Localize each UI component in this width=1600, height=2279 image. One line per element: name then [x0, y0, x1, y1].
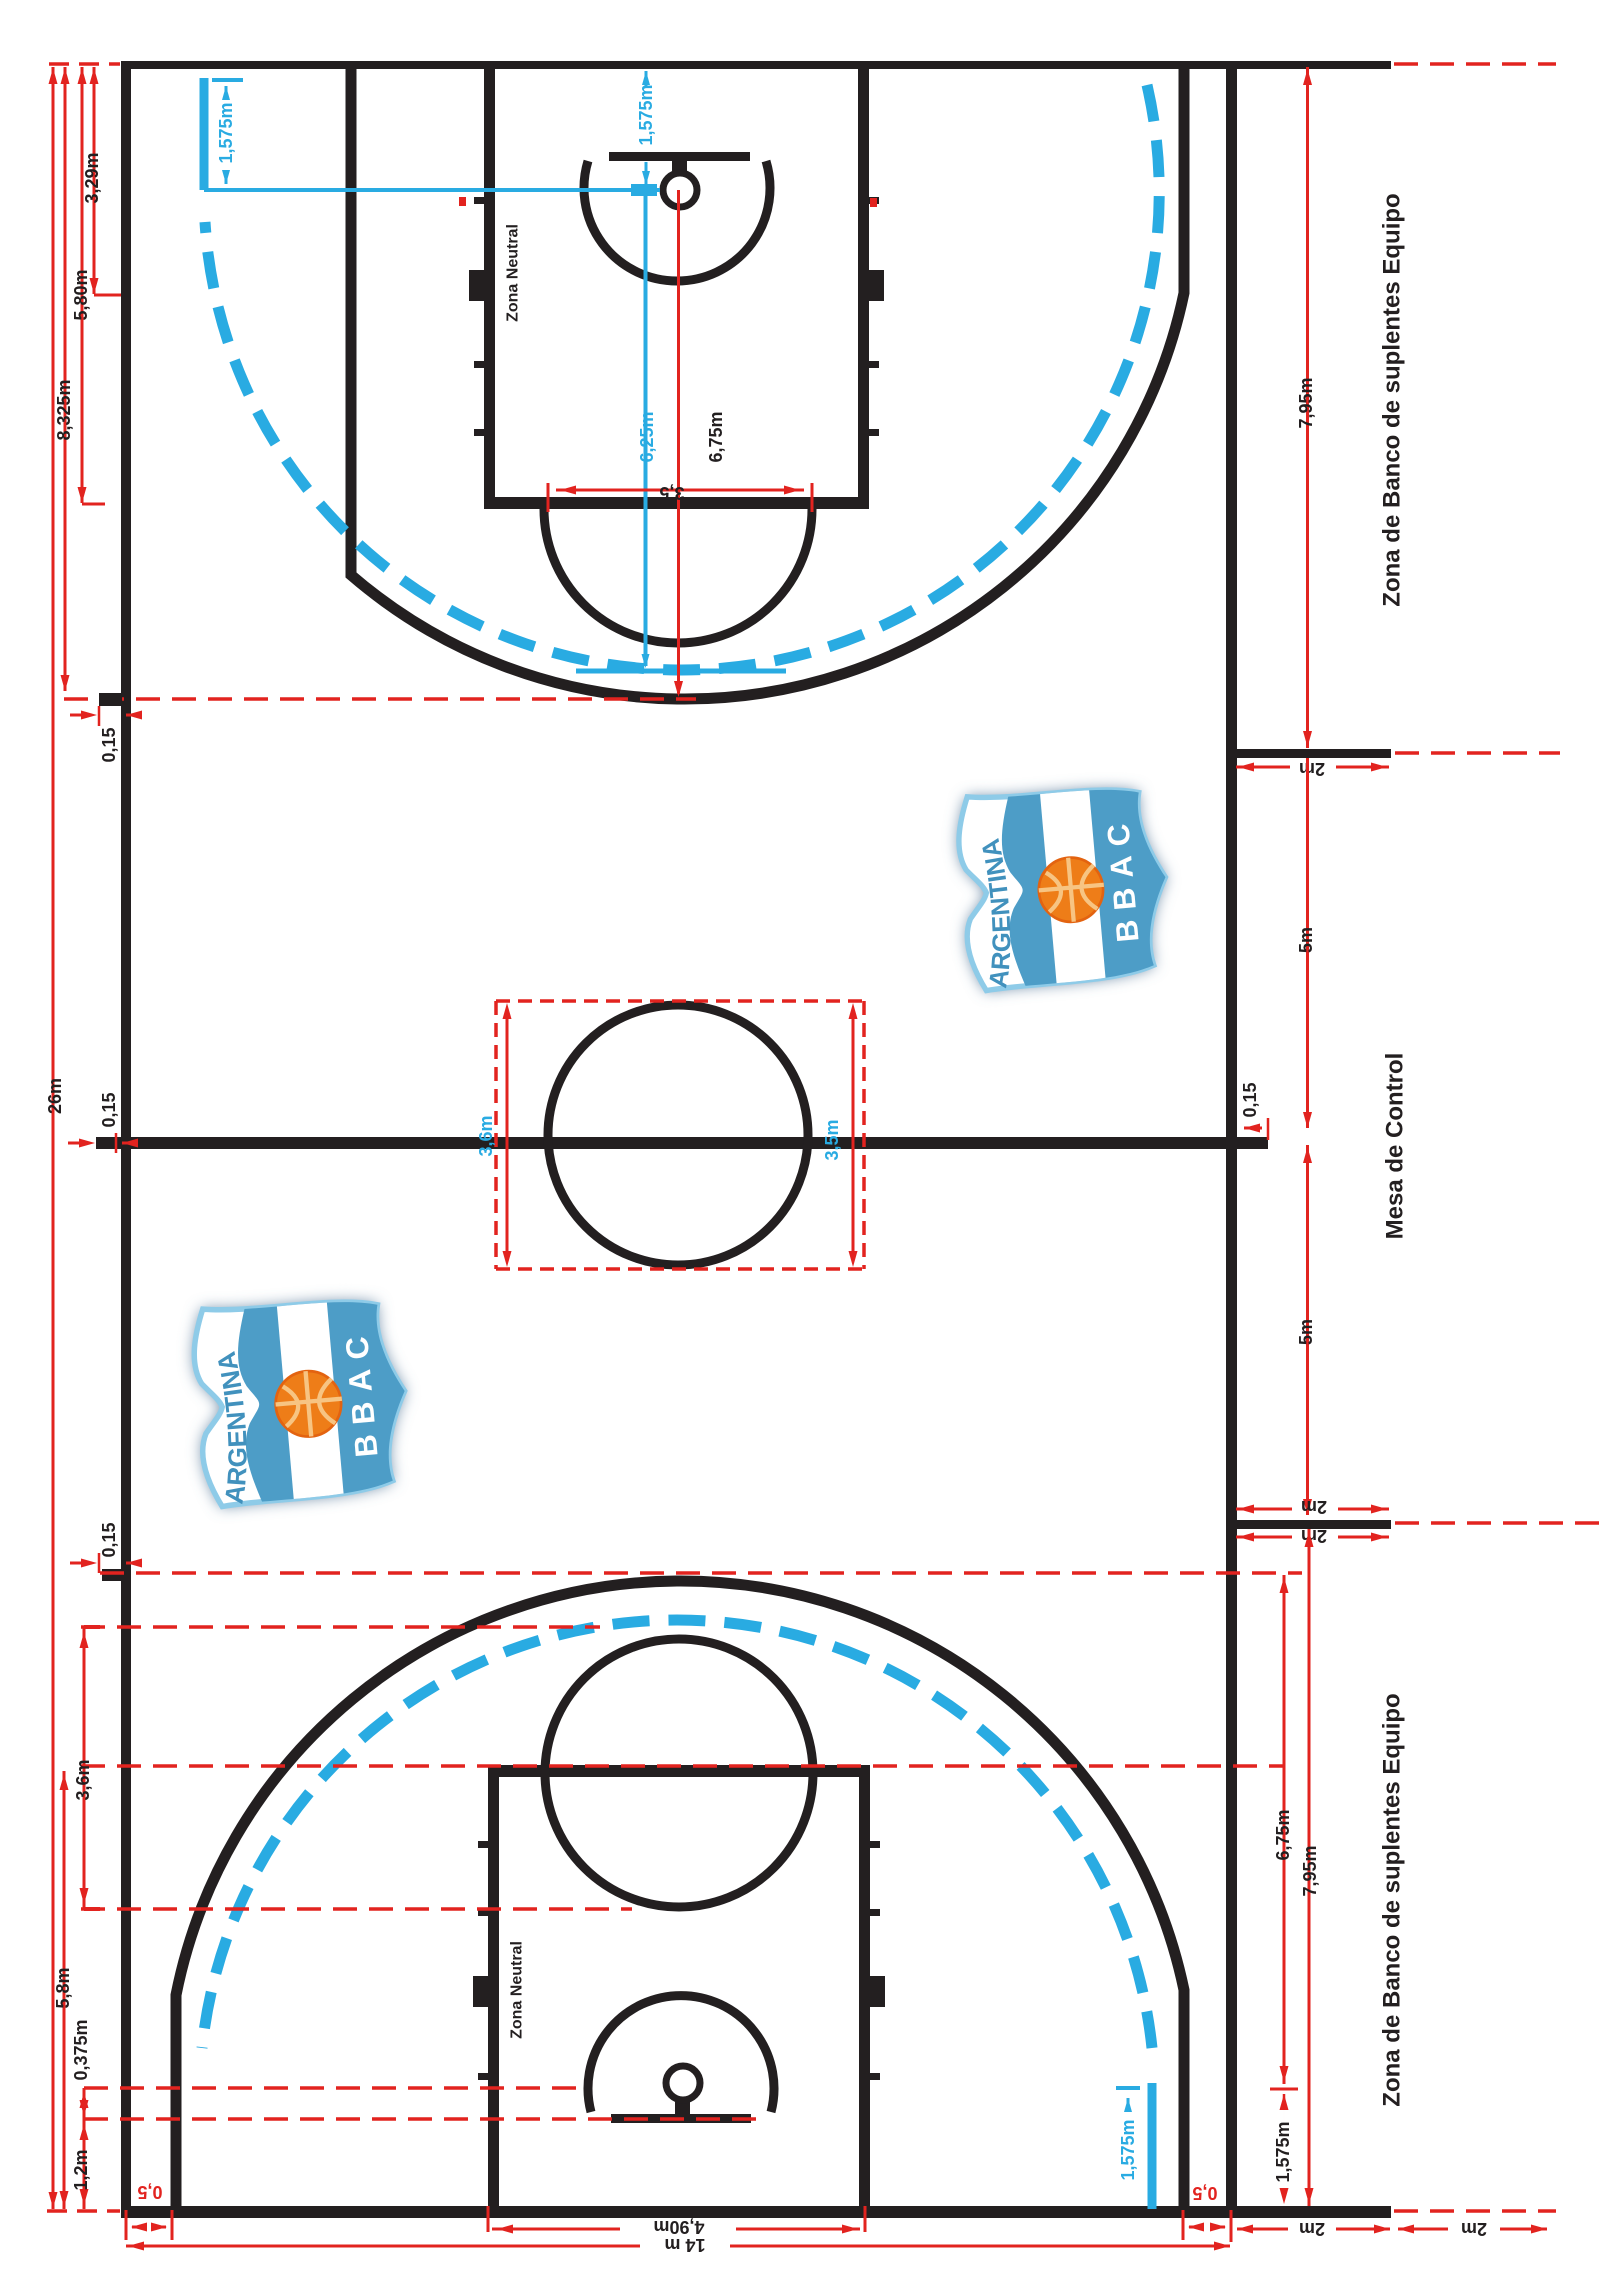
svg-text:Zona Neutral: Zona Neutral [509, 1941, 526, 2039]
svg-text:0,5: 0,5 [137, 2182, 162, 2202]
svg-text:A: A [341, 1368, 379, 1394]
svg-text:B: B [1109, 918, 1146, 943]
svg-text:14 m: 14 m [664, 2235, 705, 2255]
svg-text:2m: 2m [1461, 2219, 1487, 2239]
svg-text:2m: 2m [1301, 1526, 1327, 1546]
svg-text:8,325m: 8,325m [54, 379, 74, 440]
svg-text:A: A [1103, 854, 1140, 879]
svg-text:B: B [347, 1433, 385, 1459]
svg-text:1,575m: 1,575m [216, 102, 236, 163]
svg-text:5,8m: 5,8m [53, 1967, 73, 2008]
svg-text:B: B [344, 1400, 382, 1426]
svg-text:5,80m: 5,80m [71, 269, 91, 320]
svg-text:4,90m: 4,90m [653, 2217, 704, 2237]
svg-text:3,6m: 3,6m [73, 1759, 93, 1800]
svg-text:5m: 5m [1296, 927, 1316, 953]
svg-text:C: C [338, 1335, 376, 1361]
svg-text:Zona Neutral: Zona Neutral [505, 224, 522, 322]
svg-text:1,575m: 1,575m [1273, 2121, 1293, 2182]
svg-text:0,375m: 0,375m [71, 2019, 91, 2080]
svg-text:0,15: 0,15 [1240, 1082, 1260, 1117]
svg-text:0,5: 0,5 [1192, 2183, 1217, 2203]
svg-text:0,15: 0,15 [99, 727, 119, 762]
svg-text:2m: 2m [1299, 759, 1325, 779]
svg-text:B: B [1106, 886, 1143, 911]
svg-text:3,6m: 3,6m [476, 1115, 496, 1156]
svg-text:1,2m: 1,2m [71, 2149, 91, 2190]
svg-text:2m: 2m [1301, 1497, 1327, 1517]
svg-text:6,75m: 6,75m [706, 411, 726, 462]
svg-text:3,5m: 3,5m [822, 1119, 842, 1160]
svg-text:Zona de Banco de suplentes Equ: Zona de Banco de suplentes Equipo [1379, 193, 1406, 606]
svg-text:7,95m: 7,95m [1296, 377, 1316, 428]
svg-text:Mesa de Control: Mesa de Control [1382, 1053, 1409, 1240]
svg-text:1,575m: 1,575m [1118, 2119, 1138, 2180]
svg-text:Zona de Banco de suplentes Equ: Zona de Banco de suplentes Equipo [1379, 1693, 1406, 2106]
svg-text:26m: 26m [45, 1078, 65, 1114]
svg-text:6,25m: 6,25m [637, 411, 657, 462]
svg-text:3,5: 3,5 [659, 483, 684, 503]
svg-text:5m: 5m [1296, 1319, 1316, 1345]
svg-text:3,29m: 3,29m [82, 152, 102, 203]
svg-text:2m: 2m [1299, 2219, 1325, 2239]
svg-text:1,575m: 1,575m [636, 84, 656, 145]
svg-text:6,75m: 6,75m [1273, 1809, 1293, 1860]
svg-text:0,15: 0,15 [99, 1092, 119, 1127]
svg-text:C: C [1100, 822, 1137, 847]
svg-text:0,15: 0,15 [99, 1522, 119, 1557]
svg-text:7,95m: 7,95m [1300, 1845, 1320, 1896]
